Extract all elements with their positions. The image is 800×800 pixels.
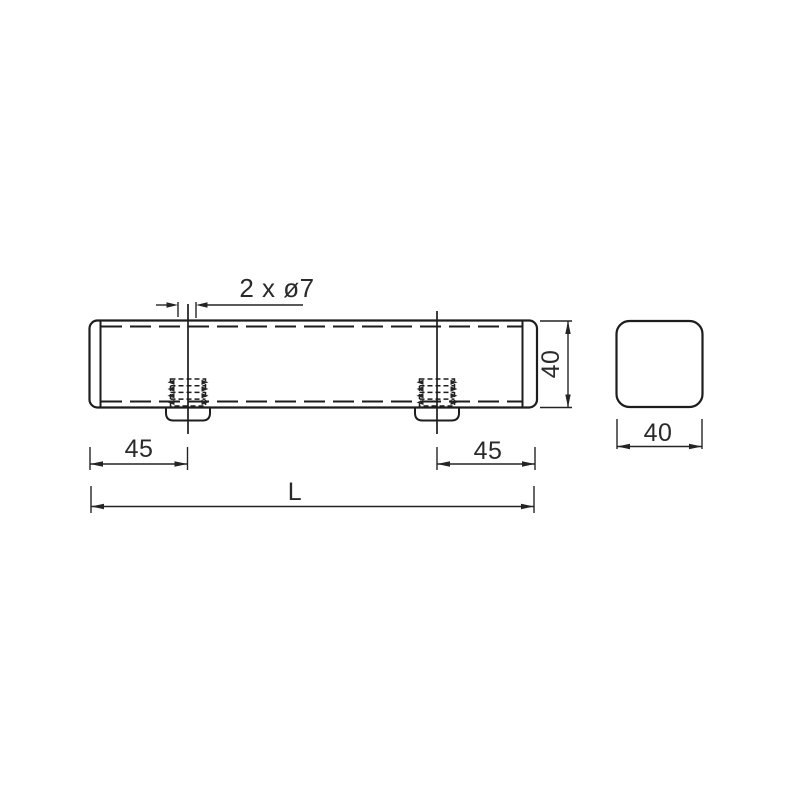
technical-drawing-canvas: 2 x ø7 40 45 45 L [0,0,800,800]
end-view [617,321,703,407]
arrowhead [565,321,570,334]
arrowhead [521,504,534,509]
right-offset-label: 45 [474,437,503,465]
overall-length-label: L [288,478,302,506]
arrowhead [565,395,570,408]
arrowhead [90,461,103,466]
arrowhead [196,302,208,307]
left-offset-label: 45 [125,435,154,463]
profile-height-label: 40 [537,350,565,379]
hole-callout-label: 2 x ø7 [239,273,314,303]
arrowhead [617,444,630,449]
dim-hole-callout: 2 x ø7 [156,273,315,318]
arrowhead [91,504,104,509]
arrowhead [167,302,179,307]
dim-right-offset: 45 [437,437,535,470]
square-profile-outline [617,321,703,407]
dim-overall-length: L [91,478,534,513]
front-view [90,304,538,434]
bar-outline [90,321,538,408]
dim-profile-height: 40 [537,321,572,408]
arrowhead [522,461,535,466]
dim-profile-width: 40 [617,419,702,449]
profile-width-label: 40 [644,419,673,447]
arrowhead [689,444,702,449]
arrowhead [437,461,450,466]
arrowhead [175,461,188,466]
dim-left-offset: 45 [90,435,188,470]
